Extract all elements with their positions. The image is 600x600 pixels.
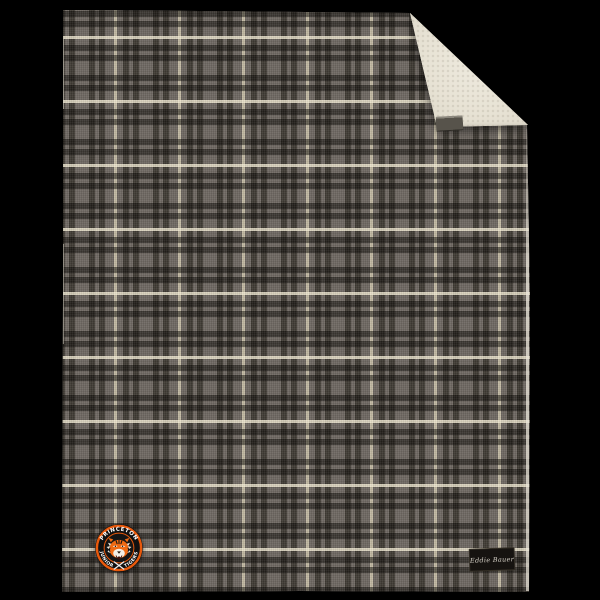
woven-tag — [436, 115, 464, 131]
blanket-plaid-front — [62, 9, 530, 593]
brand-label: Eddie Bauer — [469, 547, 516, 572]
left-edge-highlight — [62, 39, 64, 109]
brand-label-text: Eddie Bauer — [470, 555, 514, 565]
fabric-texture — [62, 9, 530, 593]
right-edge-sherpa-sliver — [526, 129, 529, 591]
logo-patch-svg: PRINCETON JUNIOR TIGERS — [95, 524, 143, 572]
team-logo-patch: PRINCETON JUNIOR TIGERS — [95, 524, 143, 572]
product-photo: Eddie Bauer PRINCETON JUNIOR TIGERS — [0, 0, 600, 600]
left-edge-highlight — [62, 244, 64, 344]
